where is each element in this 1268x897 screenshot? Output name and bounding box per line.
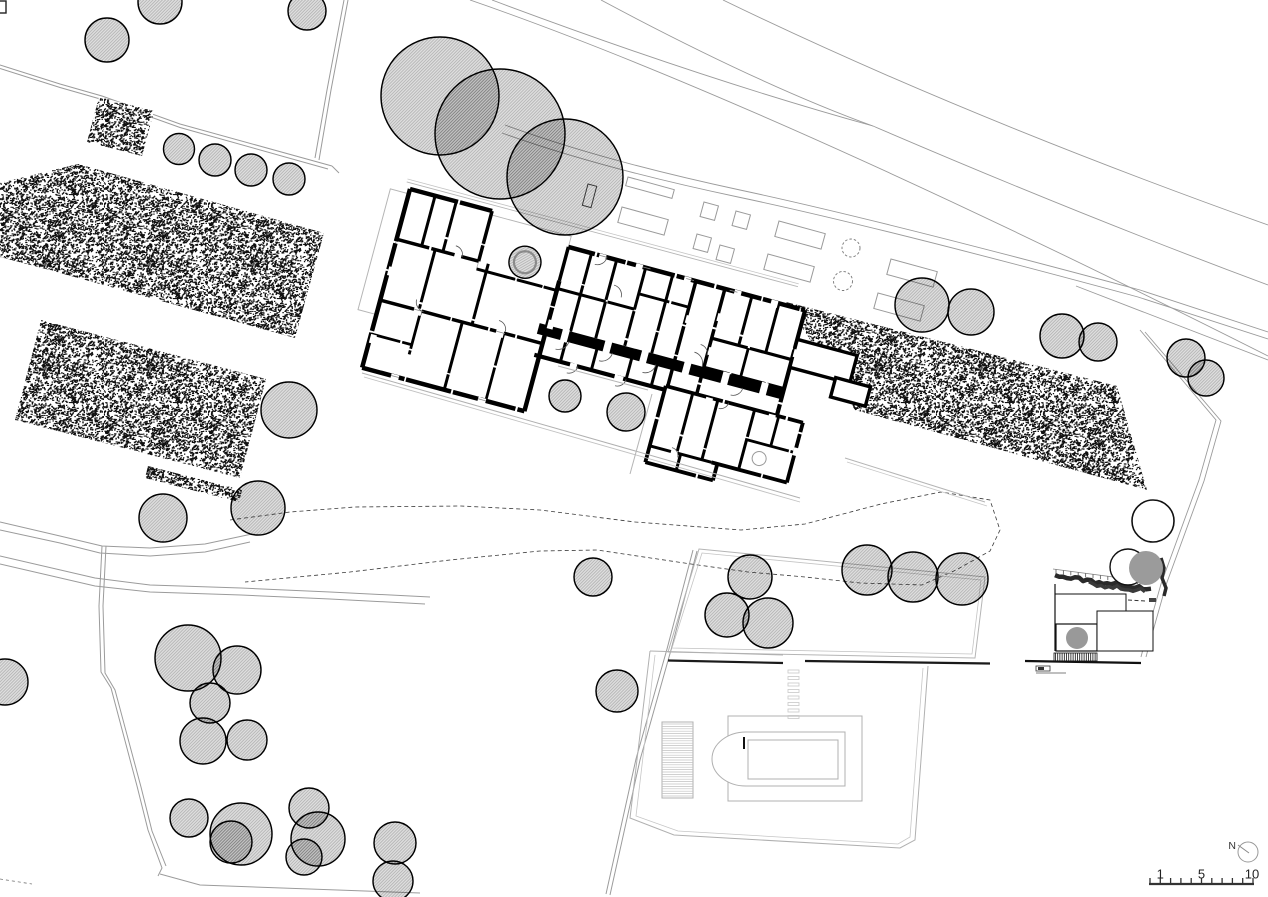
svg-text:1: 1: [1157, 867, 1164, 882]
svg-text:N: N: [1228, 840, 1236, 852]
svg-text:10: 10: [1245, 867, 1259, 882]
svg-text:5: 5: [1198, 867, 1205, 882]
